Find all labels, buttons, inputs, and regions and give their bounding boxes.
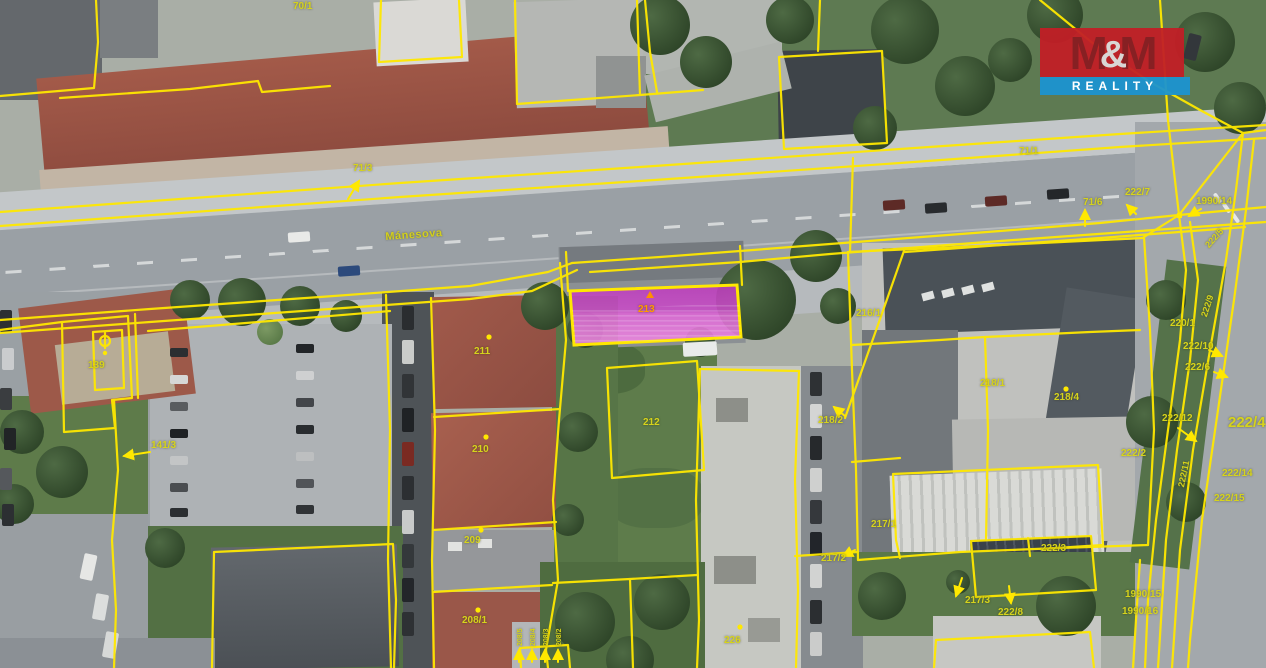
parcel-label: 71/3 — [353, 163, 372, 174]
labels-layer: 70/171/3Mánesova71/171/6222/71990/14222/… — [0, 0, 1266, 668]
parcel-label: 217/3 — [965, 595, 990, 606]
parcel-label: 216/1 — [856, 308, 881, 319]
parcel-label: 222/6 — [1185, 362, 1210, 373]
parcel-label: 208/4 — [530, 628, 537, 646]
parcel-label: 222/2 — [1121, 448, 1146, 459]
street-name-label: Mánesova — [385, 227, 443, 243]
parcel-label: 208/1 — [462, 615, 487, 626]
parcel-label: 141/3 — [151, 440, 176, 451]
parcel-label: 222/7 — [1125, 187, 1150, 198]
parcel-label: 222/12 — [1162, 413, 1193, 424]
parcel-label: 208/2 — [556, 628, 563, 646]
parcel-label: 217/2 — [821, 553, 846, 564]
logo-reality: REALITY — [1040, 77, 1190, 95]
parcel-label: 210 — [472, 444, 489, 455]
parcel-label: 211 — [474, 346, 490, 357]
logo-ampersand: & — [1100, 36, 1124, 74]
parcel-label: 218/4 — [1054, 392, 1079, 403]
parcel-label: 71/1 — [1019, 146, 1038, 157]
parcel-label: 222/10 — [1183, 341, 1214, 352]
parcel-label: 222/8 — [998, 607, 1023, 618]
parcel-label: 226 — [724, 635, 741, 646]
highlight-parcel-label: 213 — [638, 304, 655, 315]
parcel-label: 222/5 — [1203, 226, 1226, 249]
logo-mm: M&M — [1040, 28, 1184, 77]
parcel-label: 208/5 — [517, 628, 524, 646]
parcel-label: 222/15 — [1214, 493, 1245, 504]
parcel-label: 209 — [464, 535, 481, 546]
parcel-label: 222/3 — [1041, 543, 1066, 554]
parcel-label: 139 — [88, 360, 105, 371]
parcel-label: 222/9 — [1199, 294, 1215, 319]
parcel-label: 218/1 — [980, 378, 1005, 389]
parcel-label: 218/2 — [818, 415, 843, 426]
parcel-label: 212 — [643, 417, 660, 428]
parcel-label: 222/11 — [1176, 460, 1191, 489]
parcel-label: 71/6 — [1083, 197, 1102, 208]
parcel-label: 222/14 — [1222, 468, 1253, 479]
aerial-map-canvas[interactable]: 70/171/3Mánesova71/171/6222/71990/14222/… — [0, 0, 1266, 668]
parcel-label: 222/4 — [1228, 414, 1266, 431]
parcel-label: 1990/14 — [1196, 196, 1232, 207]
parcel-label: 217/1 — [871, 519, 896, 530]
mm-reality-logo: M&M REALITY — [1040, 28, 1190, 95]
parcel-label: 70/1 — [293, 1, 312, 12]
logo-letter-m: M — [1119, 30, 1154, 76]
parcel-label: 1990/16 — [1122, 606, 1158, 617]
parcel-label: 208/3 — [543, 628, 550, 646]
parcel-label: 220/1 — [1170, 318, 1195, 329]
parcel-label: 1990/15 — [1125, 589, 1161, 600]
